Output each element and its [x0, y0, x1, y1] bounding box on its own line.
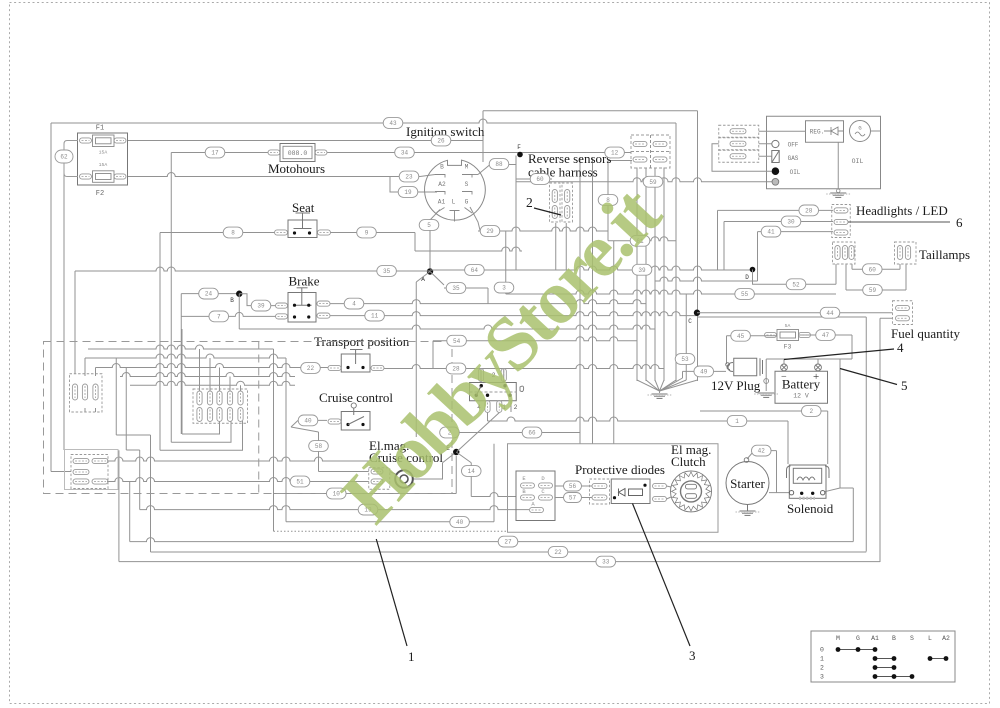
svg-text:A2: A2 — [942, 635, 950, 642]
svg-text:S: S — [910, 635, 914, 642]
svg-text:A1: A1 — [871, 635, 879, 642]
svg-text:F3: F3 — [784, 344, 792, 351]
svg-text:52: 52 — [792, 281, 800, 288]
svg-text:15A: 15A — [99, 162, 108, 168]
svg-text:B: B — [892, 635, 896, 642]
svg-text:1: 1 — [820, 656, 824, 663]
svg-text:F1: F1 — [96, 125, 104, 133]
svg-text:34: 34 — [401, 150, 409, 157]
svg-text:41: 41 — [767, 229, 775, 236]
svg-text:43: 43 — [389, 120, 397, 127]
svg-text:23: 23 — [405, 174, 413, 181]
svg-text:88: 88 — [495, 161, 503, 168]
svg-text:8: 8 — [231, 230, 235, 237]
svg-text:59: 59 — [649, 179, 657, 186]
svg-text:55: 55 — [741, 291, 749, 298]
svg-text:19: 19 — [404, 189, 412, 196]
svg-text:M: M — [836, 635, 840, 642]
svg-text:60: 60 — [869, 266, 877, 273]
svg-text:66: 66 — [528, 430, 536, 437]
svg-text:47: 47 — [822, 332, 830, 339]
svg-text:5: 5 — [901, 378, 908, 393]
svg-text:12V Plug: 12V Plug — [711, 378, 761, 393]
svg-text:58: 58 — [315, 443, 323, 450]
svg-text:30: 30 — [787, 219, 795, 226]
svg-text:15A: 15A — [99, 150, 108, 156]
svg-text:40: 40 — [304, 418, 312, 425]
svg-text:6: 6 — [956, 215, 963, 230]
svg-text:C: C — [688, 318, 692, 325]
svg-text:28: 28 — [805, 208, 813, 215]
svg-text:Cruise control: Cruise control — [319, 390, 393, 405]
svg-text:2: 2 — [526, 195, 533, 210]
svg-text:24: 24 — [205, 291, 213, 298]
svg-text:B: B — [230, 297, 234, 304]
svg-text:35: 35 — [452, 285, 460, 292]
svg-text:17: 17 — [211, 150, 219, 157]
svg-text:OFF: OFF — [788, 142, 799, 149]
svg-text:D: D — [745, 274, 749, 281]
svg-text:E: E — [522, 475, 526, 482]
svg-text:2: 2 — [514, 404, 518, 411]
svg-text:11: 11 — [371, 313, 379, 320]
svg-text:62: 62 — [60, 154, 68, 161]
svg-text:35: 35 — [383, 268, 391, 275]
svg-text:D: D — [541, 475, 545, 482]
svg-text:64: 64 — [471, 267, 479, 274]
svg-text:Motohours: Motohours — [268, 161, 325, 176]
svg-text:39: 39 — [257, 303, 265, 310]
svg-text:0: 0 — [820, 647, 824, 654]
svg-text:B: B — [440, 163, 444, 170]
svg-text:A2: A2 — [438, 181, 446, 188]
svg-text:3: 3 — [689, 648, 696, 663]
svg-text:HobbyStore.it: HobbyStore.it — [325, 169, 677, 538]
svg-text:40: 40 — [456, 519, 464, 526]
svg-text:Protective diodes: Protective diodes — [575, 462, 665, 477]
svg-text:088.0: 088.0 — [288, 150, 308, 157]
svg-text:G: G — [465, 199, 469, 206]
svg-text:Fuel quantity: Fuel quantity — [891, 326, 960, 341]
svg-text:2: 2 — [809, 408, 813, 415]
svg-text:REG.: REG. — [810, 129, 824, 136]
svg-text:Battery: Battery — [782, 377, 821, 392]
svg-text:Solenoid: Solenoid — [787, 501, 834, 516]
svg-text:2: 2 — [820, 665, 824, 672]
svg-text:49: 49 — [700, 369, 708, 376]
svg-text:51: 51 — [296, 479, 304, 486]
svg-text:L: L — [452, 199, 456, 206]
svg-text:G: G — [858, 125, 861, 132]
svg-text:44: 44 — [826, 310, 834, 317]
svg-text:9: 9 — [365, 230, 369, 237]
svg-text:7: 7 — [217, 314, 221, 321]
svg-text:12: 12 — [611, 150, 619, 157]
svg-text:3: 3 — [820, 674, 824, 681]
svg-text:1: 1 — [735, 418, 739, 425]
svg-text:C: C — [541, 488, 545, 495]
svg-text:Headlights / LED: Headlights / LED — [856, 203, 948, 218]
svg-text:F2: F2 — [96, 190, 104, 198]
svg-text:Clutch: Clutch — [671, 454, 706, 469]
svg-text:4: 4 — [352, 301, 356, 308]
svg-text:Taillamps: Taillamps — [919, 247, 970, 262]
svg-text:M: M — [465, 163, 469, 170]
svg-text:Brake: Brake — [289, 274, 320, 289]
svg-text:OIL: OIL — [790, 169, 801, 176]
svg-text:5A: 5A — [785, 323, 791, 329]
svg-text:A1: A1 — [438, 199, 446, 206]
svg-text:G: G — [856, 635, 860, 642]
svg-text:42: 42 — [758, 448, 766, 455]
svg-text:14: 14 — [468, 468, 476, 475]
svg-text:F: F — [517, 144, 521, 151]
svg-text:26: 26 — [437, 138, 445, 145]
svg-text:OIL: OIL — [852, 158, 864, 165]
svg-text:57: 57 — [569, 495, 577, 502]
svg-text:Starter: Starter — [730, 476, 765, 491]
svg-text:A: A — [531, 501, 535, 508]
svg-text:S: S — [465, 181, 469, 188]
svg-text:5: 5 — [427, 222, 431, 229]
svg-text:59: 59 — [869, 287, 877, 294]
svg-text:12 V: 12 V — [793, 393, 809, 400]
svg-text:60: 60 — [536, 176, 544, 183]
svg-text:1: 1 — [408, 649, 415, 664]
svg-text:4: 4 — [897, 340, 904, 355]
svg-text:45: 45 — [737, 333, 745, 340]
svg-text:29: 29 — [486, 228, 494, 235]
svg-text:L: L — [928, 635, 932, 642]
svg-text:27: 27 — [504, 539, 512, 546]
svg-text:B: B — [522, 488, 526, 495]
svg-text:GAS: GAS — [788, 155, 799, 162]
svg-text:33: 33 — [602, 559, 610, 566]
svg-text:22: 22 — [554, 549, 562, 556]
svg-text:56: 56 — [569, 483, 577, 490]
svg-text:22: 22 — [307, 365, 315, 372]
svg-text:53: 53 — [681, 356, 689, 363]
